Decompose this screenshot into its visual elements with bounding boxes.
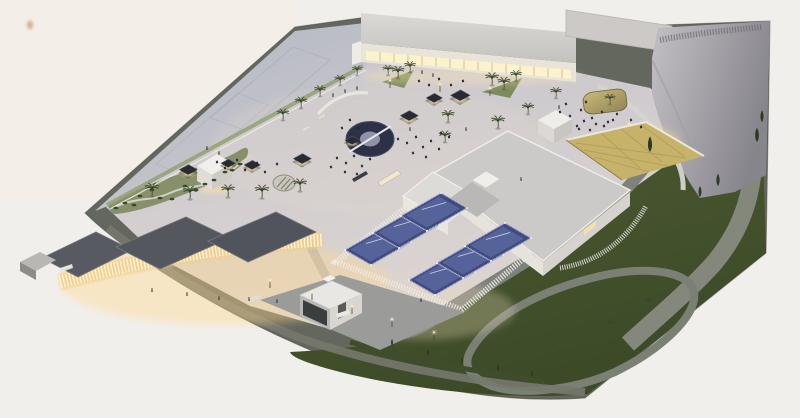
rendering-canvas	[0, 0, 800, 418]
bush-sprite	[558, 351, 563, 354]
photo-smudge	[27, 21, 33, 30]
bush-sprite	[608, 321, 613, 324]
bush-sprite	[132, 204, 137, 207]
bush-sprite	[170, 198, 175, 201]
bush-sprite	[223, 171, 228, 174]
hall-end-cap	[352, 41, 361, 65]
gold-pavilion	[583, 89, 627, 114]
bush-sprite	[123, 202, 128, 205]
bush-sprite	[646, 299, 651, 302]
bush-sprite	[114, 207, 119, 210]
bush-sprite	[212, 179, 217, 182]
architectural-rendering	[0, 0, 800, 418]
bush-sprite	[158, 197, 163, 200]
bush-sprite	[238, 163, 243, 166]
bush-sprite	[203, 183, 208, 186]
scene-layers	[0, 0, 800, 418]
bush-sprite	[138, 195, 143, 198]
